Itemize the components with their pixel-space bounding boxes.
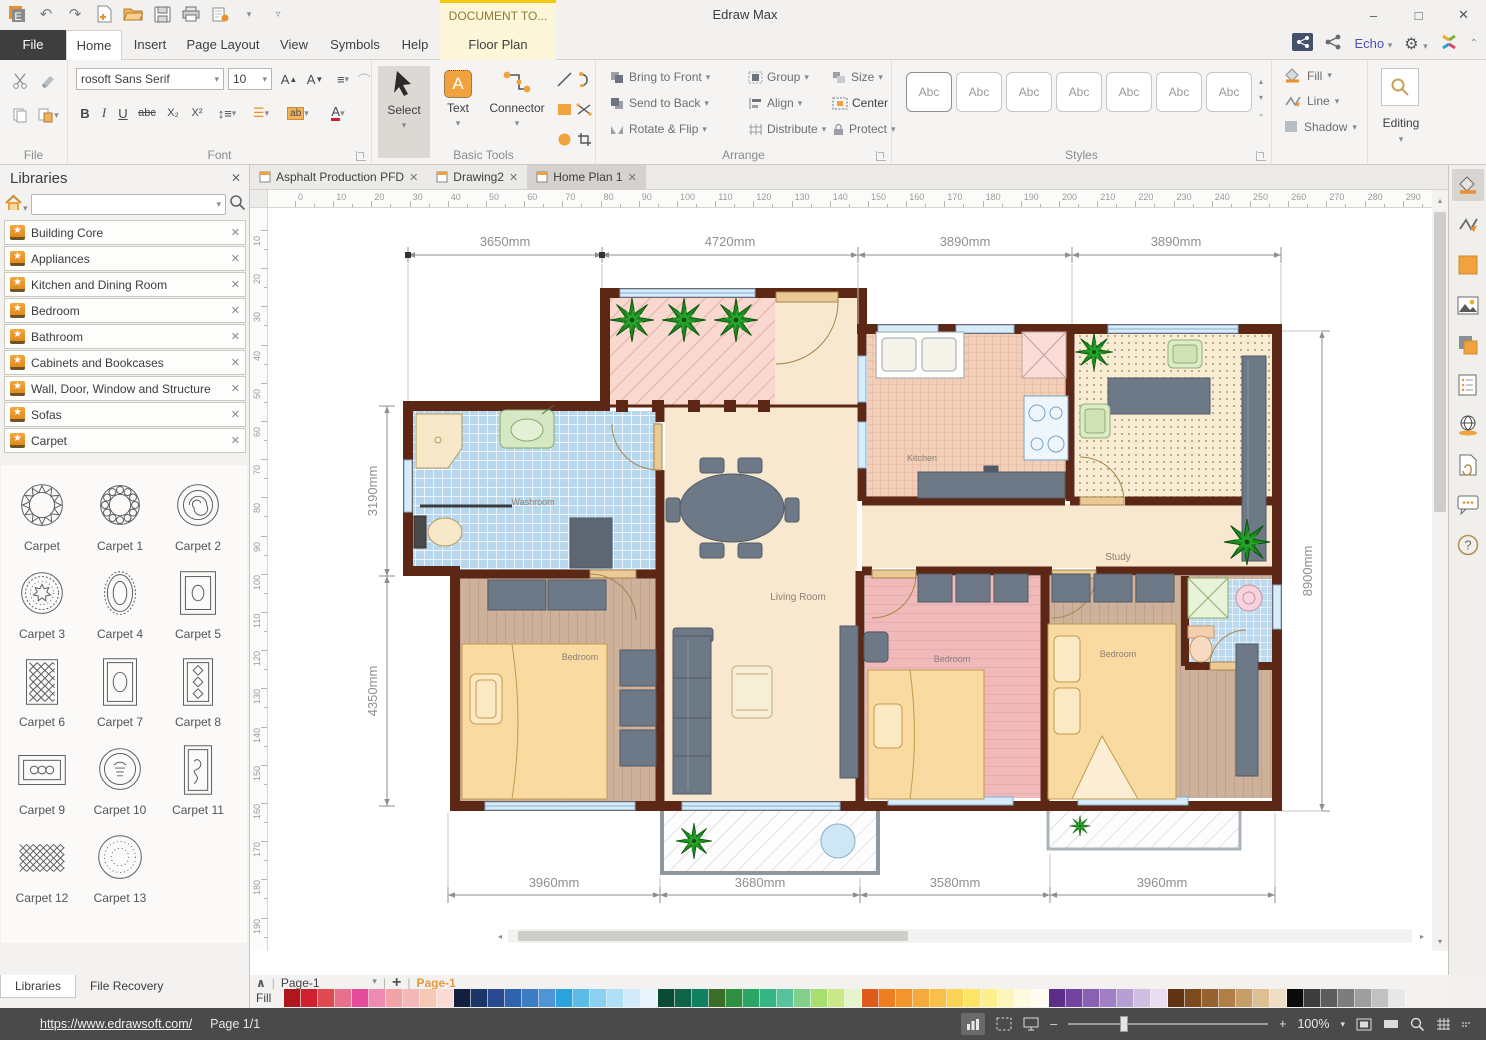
editing-find-icon[interactable]	[1381, 68, 1419, 106]
carpet-item[interactable]: Carpet	[3, 471, 81, 559]
fit-page-icon[interactable]	[1356, 1018, 1372, 1031]
color-swatch[interactable]	[1134, 989, 1151, 1007]
color-swatch[interactable]	[845, 989, 862, 1007]
select-tool-button[interactable]: Select▾	[378, 66, 430, 158]
share-icon[interactable]	[1325, 34, 1342, 53]
library-group[interactable]: ★Bedroom✕	[4, 298, 246, 323]
layers-icon[interactable]	[1452, 329, 1484, 361]
library-group-label: Cabinets and Bookcases	[31, 356, 225, 370]
ruler-number: 140	[833, 192, 848, 202]
crop-tool-icon[interactable]	[572, 128, 596, 150]
color-swatch[interactable]	[488, 989, 505, 1007]
shadow-icon	[1284, 120, 1299, 134]
color-swatch[interactable]	[437, 989, 454, 1007]
color-swatch[interactable]	[1151, 989, 1168, 1007]
color-swatch[interactable]	[658, 989, 675, 1007]
bullet-list-icon[interactable]: ☰ ▾	[246, 102, 276, 124]
color-swatch[interactable]	[1219, 989, 1236, 1007]
ruler-number: 0	[298, 192, 303, 202]
carpet-item[interactable]: Carpet 9	[3, 735, 81, 823]
library-star-icon: ★	[10, 433, 25, 448]
color-swatch[interactable]	[1338, 989, 1355, 1007]
color-swatch[interactable]	[896, 989, 913, 1007]
balconies[interactable]	[662, 807, 1240, 873]
attachment-icon[interactable]	[1452, 449, 1484, 481]
arrange-dialog-launcher-icon[interactable]	[876, 151, 886, 161]
svg-text:E: E	[14, 11, 21, 23]
carpet-item[interactable]: Carpet 2	[159, 471, 237, 559]
color-swatch[interactable]	[284, 989, 301, 1007]
carpet-item[interactable]: Carpet 10	[81, 735, 159, 823]
horizontal-scrollbar[interactable]: ◂ ▸	[508, 929, 1412, 943]
bold-button[interactable]: B	[76, 102, 94, 124]
library-search-input[interactable]: ▾	[31, 194, 226, 215]
color-swatch[interactable]	[930, 989, 947, 1007]
insert-image-icon[interactable]	[1452, 289, 1484, 321]
carpet-shape-icon	[89, 563, 151, 625]
library-group[interactable]: ★Sofas✕	[4, 402, 246, 427]
decrease-font-icon[interactable]: A▼	[302, 68, 328, 90]
save-button[interactable]	[151, 3, 173, 25]
undo-button[interactable]: ↶	[35, 3, 57, 25]
library-star-icon: ★	[10, 355, 25, 370]
send-to-back-button[interactable]: Send to Back▾	[610, 96, 709, 110]
page-select[interactable]: Page-1▾	[281, 976, 377, 990]
library-group-label: Bedroom	[31, 304, 225, 318]
comment-icon[interactable]	[1452, 489, 1484, 521]
carpet-shape-icon	[167, 563, 229, 625]
subscript-button[interactable]: X₂	[162, 102, 184, 124]
carpet-shape-icon	[89, 651, 151, 713]
tab-insert[interactable]: Insert	[122, 30, 178, 60]
color-swatch[interactable]	[1304, 989, 1321, 1007]
library-group[interactable]: ★Building Core✕	[4, 220, 246, 245]
color-palette	[284, 989, 1406, 1007]
carpet-label: Carpet 3	[19, 627, 65, 641]
doc-tab-drawing2[interactable]: Drawing2✕	[427, 165, 527, 189]
color-swatch[interactable]	[675, 989, 692, 1007]
style-preset[interactable]: Abc	[1206, 72, 1252, 112]
color-swatch[interactable]	[1372, 989, 1389, 1007]
zoom-slider-thumb[interactable]	[1120, 1016, 1128, 1032]
distribute-icon	[748, 123, 763, 136]
carpet-gallery: CarpetCarpet 1Carpet 2Carpet 3Carpet 4Ca…	[1, 465, 247, 943]
label-study: Study	[1105, 552, 1131, 563]
carpet-item[interactable]: Carpet 6	[3, 647, 81, 735]
style-preset[interactable]: Abc	[1106, 72, 1152, 112]
styles-dialog-launcher-icon[interactable]	[1256, 151, 1266, 161]
select-area-icon[interactable]	[996, 1017, 1012, 1031]
panel-tab-file-recovery[interactable]: File Recovery	[76, 975, 177, 997]
ruler-number: 130	[252, 689, 262, 704]
horizontal-ruler[interactable]: 0102030405060708090100110120130140150160…	[268, 190, 1432, 208]
carpet-shape-icon	[167, 739, 229, 801]
zoom-level[interactable]: 100%	[1297, 1017, 1329, 1031]
ruler-number: 160	[252, 804, 262, 819]
h-scroll-thumb[interactable]	[518, 931, 908, 941]
label-bedroom: Bedroom	[562, 652, 599, 662]
ruler-number: 50	[489, 192, 499, 202]
page-bar: ∧ | Page-1▾ | + | Page-1 Fill	[250, 975, 1448, 1008]
editing-label[interactable]: Editing	[1368, 116, 1434, 130]
redo-button[interactable]: ↷	[64, 3, 86, 25]
color-swatch[interactable]	[539, 989, 556, 1007]
font-color-icon[interactable]: A ▾	[320, 102, 356, 124]
color-swatch[interactable]	[556, 989, 573, 1007]
fit-width-icon[interactable]	[1383, 1019, 1399, 1030]
library-group[interactable]: ★Appliances✕	[4, 246, 246, 271]
color-swatch[interactable]	[828, 989, 845, 1007]
zoom-dropdown-icon[interactable]: ▾	[1340, 1019, 1345, 1030]
customize-qat-icon[interactable]: ▿	[267, 3, 289, 25]
bring-to-front-button[interactable]: Bring to Front▾	[610, 70, 710, 84]
carpet-label: Carpet 10	[94, 803, 147, 817]
quick-color-icon[interactable]	[1452, 249, 1484, 281]
ruler-number: 80	[604, 192, 614, 202]
close-library-icon[interactable]: ✕	[231, 434, 240, 447]
vertical-scrollbar[interactable]: ▴ ▾	[1432, 190, 1448, 951]
color-swatch[interactable]	[794, 989, 811, 1007]
title-bar: E ↶ ↷ ▾ ▿ Edraw Max – □ ✕	[0, 0, 1486, 30]
drawing-canvas[interactable]: Washroom Kitchen Study Living Room Bedro…	[268, 208, 1432, 951]
open-file-button[interactable]	[122, 3, 144, 25]
center-icon	[832, 97, 848, 110]
library-star-icon: ★	[10, 407, 25, 422]
color-swatch[interactable]	[692, 989, 709, 1007]
close-library-icon[interactable]: ✕	[231, 408, 240, 421]
color-swatch[interactable]	[607, 989, 624, 1007]
style-preset[interactable]: Abc	[1156, 72, 1202, 112]
minimize-button[interactable]: –	[1351, 0, 1396, 30]
collapse-ribbon-icon[interactable]: ⌃	[1470, 38, 1478, 49]
strikethrough-button[interactable]: abc	[134, 102, 160, 124]
style-preset[interactable]: Abc	[1006, 72, 1052, 112]
resize-grip[interactable]	[1462, 1022, 1472, 1027]
color-swatch[interactable]	[879, 989, 896, 1007]
carpet-item[interactable]: Carpet 13	[81, 823, 159, 911]
color-swatch[interactable]	[590, 989, 607, 1007]
label-washroom: Washroom	[511, 497, 554, 507]
color-swatch[interactable]	[403, 989, 420, 1007]
tab-file[interactable]: File	[0, 30, 66, 60]
protect-lock-icon	[832, 123, 845, 136]
text-highlight-icon[interactable]: ab ▾	[280, 102, 316, 124]
presentation-icon[interactable]	[1023, 1017, 1039, 1031]
connector-icon	[502, 70, 532, 98]
ruler-number: 60	[252, 427, 262, 437]
ribbon-group-editing: Editing ▾	[1368, 60, 1434, 164]
community-icon[interactable]	[1440, 33, 1458, 54]
help-icon[interactable]: ?	[1452, 529, 1484, 561]
color-swatch[interactable]	[1185, 989, 1202, 1007]
close-library-icon[interactable]: ✕	[231, 252, 240, 265]
color-swatch[interactable]	[913, 989, 930, 1007]
color-swatch[interactable]	[1032, 989, 1049, 1007]
library-group[interactable]: ★Carpet✕	[4, 428, 246, 453]
tab-symbols[interactable]: Symbols	[320, 30, 390, 60]
carpet-item[interactable]: Carpet 8	[159, 647, 237, 735]
doc-tab-home-plan[interactable]: Home Plan 1✕	[527, 165, 646, 189]
close-library-icon[interactable]: ✕	[231, 278, 240, 291]
color-swatch[interactable]	[573, 989, 590, 1007]
zoom-out-button[interactable]: –	[1050, 1017, 1057, 1031]
color-swatch[interactable]	[1253, 989, 1270, 1007]
carpet-item[interactable]: Carpet 12	[3, 823, 81, 911]
ruler-number: 200	[1062, 192, 1077, 202]
fill-tool-icon[interactable]	[1452, 169, 1484, 201]
ruler-number: 60	[527, 192, 537, 202]
line-tool-sidebar-icon[interactable]	[1452, 209, 1484, 241]
library-group-label: Wall, Door, Window and Structure	[31, 382, 225, 396]
color-swatch[interactable]	[471, 989, 488, 1007]
zoom-in-button[interactable]: +	[1279, 1017, 1286, 1031]
ruler-number: 290	[1406, 192, 1421, 202]
color-swatch[interactable]	[420, 989, 437, 1007]
align-button[interactable]: Align▾	[748, 96, 802, 110]
carpet-item[interactable]: Carpet 5	[159, 559, 237, 647]
style-preset[interactable]: Abc	[956, 72, 1002, 112]
hyperlink-icon[interactable]	[1452, 409, 1484, 441]
color-swatch[interactable]	[1287, 989, 1304, 1007]
color-swatch[interactable]	[352, 989, 369, 1007]
fill-palette-label: Fill	[256, 991, 271, 1005]
curve-tool-icon[interactable]	[572, 68, 596, 90]
color-swatch[interactable]	[335, 989, 352, 1007]
color-swatch[interactable]	[1015, 989, 1032, 1007]
color-swatch[interactable]	[505, 989, 522, 1007]
text-arc-icon[interactable]: ⌒	[356, 68, 372, 90]
library-group[interactable]: ★Cabinets and Bookcases✕	[4, 350, 246, 375]
style-preset[interactable]: Abc	[906, 72, 952, 112]
library-group[interactable]: ★Kitchen and Dining Room✕	[4, 272, 246, 297]
ruler-number: 140	[252, 728, 262, 743]
website-link[interactable]: https://www.edrawsoft.com/	[40, 1017, 192, 1031]
close-library-icon[interactable]: ✕	[231, 304, 240, 317]
ruler-number: 20	[374, 192, 384, 202]
page-tab[interactable]: Page-1	[416, 976, 455, 990]
shadow-button[interactable]: Shadow▾	[1284, 120, 1357, 134]
color-swatch[interactable]	[369, 989, 386, 1007]
color-swatch[interactable]	[1083, 989, 1100, 1007]
carpet-shape-icon	[89, 827, 151, 889]
style-preset[interactable]: Abc	[1056, 72, 1102, 112]
print-button[interactable]	[180, 3, 202, 25]
search-icon[interactable]	[229, 194, 246, 214]
color-swatch[interactable]	[454, 989, 471, 1007]
ruler-number: 110	[718, 192, 732, 202]
color-swatch[interactable]	[624, 989, 641, 1007]
styles-more-icon[interactable]: ⌄	[1254, 102, 1268, 124]
color-swatch[interactable]	[1100, 989, 1117, 1007]
select-cursor-icon	[391, 70, 417, 100]
tab-view[interactable]: View	[268, 30, 320, 60]
size-button[interactable]: Size▾	[832, 70, 883, 84]
library-group[interactable]: ★Wall, Door, Window and Structure✕	[4, 376, 246, 401]
panel-bottom-tabs: Libraries File Recovery	[0, 975, 250, 1008]
ruler-number: 90	[252, 542, 262, 552]
export-button[interactable]	[209, 3, 231, 25]
carpet-item[interactable]: Carpet 3	[3, 559, 81, 647]
doc-tab-asphalt[interactable]: Asphalt Production PFD✕	[250, 165, 427, 189]
library-groups: ★Building Core✕★Appliances✕★Kitchen and …	[0, 219, 250, 454]
increase-font-icon[interactable]: A▲	[276, 68, 302, 90]
color-swatch[interactable]	[1202, 989, 1219, 1007]
ruler-number: 190	[252, 919, 262, 934]
group-icon	[748, 71, 763, 84]
carpet-shape-icon	[89, 739, 151, 801]
font-size-select[interactable]: 10▾	[228, 68, 272, 90]
font-family-select[interactable]: rosoft Sans Serif▾	[76, 68, 224, 90]
group-button[interactable]: Group▾	[748, 70, 809, 84]
color-swatch[interactable]	[862, 989, 879, 1007]
color-swatch[interactable]	[1066, 989, 1083, 1007]
underline-button[interactable]: U	[114, 102, 132, 124]
tab-page-layout[interactable]: Page Layout	[178, 30, 268, 60]
line-button[interactable]: Line▾	[1284, 94, 1339, 108]
label-bedroom: Bedroom	[934, 654, 971, 664]
v-scroll-thumb[interactable]	[1434, 212, 1446, 512]
color-swatch[interactable]	[998, 989, 1015, 1007]
ruler-number: 100	[680, 192, 695, 202]
carpet-item[interactable]: Carpet 11	[159, 735, 237, 823]
maximize-button[interactable]: □	[1396, 0, 1441, 30]
color-swatch[interactable]	[522, 989, 539, 1007]
ruler-number: 180	[252, 880, 262, 895]
close-button[interactable]: ✕	[1441, 0, 1486, 30]
home-library-icon[interactable]: ▾	[4, 194, 28, 214]
ruler-number: 110	[252, 614, 262, 628]
center-button[interactable]: Center	[832, 96, 888, 110]
carpet-item[interactable]: Carpet 7	[81, 647, 159, 735]
rotate-flip-button[interactable]: Rotate & Flip▾	[610, 122, 707, 136]
color-swatch[interactable]	[318, 989, 335, 1007]
zoom-slider[interactable]	[1068, 1023, 1268, 1025]
color-swatch[interactable]	[1389, 989, 1406, 1007]
svg-text:3890mm: 3890mm	[1151, 234, 1202, 249]
color-swatch[interactable]	[777, 989, 794, 1007]
protect-button[interactable]: Protect▾	[832, 122, 896, 136]
zoom-region-icon[interactable]	[1410, 1017, 1425, 1031]
close-library-icon[interactable]: ✕	[231, 382, 240, 395]
paste-icon[interactable]: ▾	[36, 104, 60, 126]
library-group-label: Building Core	[31, 226, 225, 240]
carpet-label: Carpet 4	[97, 627, 143, 641]
color-swatch[interactable]	[726, 989, 743, 1007]
tab-help[interactable]: Help	[390, 30, 440, 60]
settings-gear-icon[interactable]: ⚙ ▾	[1404, 34, 1427, 54]
carpet-item[interactable]: Carpet 1	[81, 471, 159, 559]
collapse-pages-icon[interactable]: ∧	[256, 976, 266, 990]
new-document-button[interactable]	[93, 3, 115, 25]
qat-export-dropdown-icon[interactable]: ▾	[238, 3, 260, 25]
ruler-number: 40	[451, 192, 461, 202]
grid-toggle-icon[interactable]	[1436, 1017, 1451, 1031]
align-text-icon[interactable]: ≡ ▾	[330, 68, 356, 90]
ruler-number: 270	[1329, 192, 1344, 202]
import-icon[interactable]	[1292, 33, 1313, 54]
color-swatch[interactable]	[947, 989, 964, 1007]
color-swatch[interactable]	[709, 989, 726, 1007]
edraw-max-window: E ↶ ↷ ▾ ▿ Edraw Max – □ ✕ DOCUMENT TO...…	[0, 0, 1486, 1040]
copy-icon[interactable]	[8, 104, 32, 126]
send-to-back-icon	[610, 97, 625, 110]
size-icon	[832, 71, 847, 84]
ruler-number: 40	[252, 351, 262, 361]
vertical-ruler[interactable]: 1020304050607080901001101201301401501601…	[250, 208, 268, 951]
library-star-icon: ★	[10, 329, 25, 344]
color-swatch[interactable]	[1355, 989, 1372, 1007]
color-swatch[interactable]	[1270, 989, 1287, 1007]
color-swatch[interactable]	[964, 989, 981, 1007]
color-swatch[interactable]	[1236, 989, 1253, 1007]
fill-button[interactable]: Fill▾	[1284, 68, 1332, 83]
color-swatch[interactable]	[743, 989, 760, 1007]
close-panel-icon[interactable]: ✕	[231, 171, 241, 185]
close-library-icon[interactable]: ✕	[231, 330, 240, 343]
color-swatch[interactable]	[760, 989, 777, 1007]
ruler-number: 80	[252, 503, 262, 513]
carpet-label: Carpet 13	[94, 891, 147, 905]
ruler-number: 250	[1253, 192, 1268, 202]
library-star-icon: ★	[10, 381, 25, 396]
color-swatch[interactable]	[386, 989, 403, 1007]
superscript-button[interactable]: X²	[186, 102, 208, 124]
notes-icon[interactable]	[1452, 369, 1484, 401]
cut-icon[interactable]	[8, 70, 32, 92]
color-swatch[interactable]	[1168, 989, 1185, 1007]
account-menu[interactable]: Echo ▾	[1354, 36, 1392, 51]
italic-button[interactable]: I	[96, 102, 112, 124]
color-swatch[interactable]	[981, 989, 998, 1007]
line-spacing-icon[interactable]: ↕≡ ▾	[212, 102, 242, 124]
theme-panel-icon[interactable]	[961, 1013, 985, 1035]
color-swatch[interactable]	[301, 989, 318, 1007]
status-bar: https://www.edrawsoft.com/ Page 1/1 – + …	[0, 1008, 1486, 1040]
tab-floor-plan[interactable]: Floor Plan	[440, 30, 556, 60]
color-swatch[interactable]	[641, 989, 658, 1007]
quick-access-toolbar: E ↶ ↷ ▾ ▿	[6, 3, 289, 25]
distribute-button[interactable]: Distribute▾	[748, 122, 826, 136]
document-icon	[259, 171, 271, 183]
ruler-number: 30	[413, 192, 423, 202]
connector-tool-button[interactable]: Connector▾	[486, 66, 548, 158]
freeform-tool-icon[interactable]	[572, 98, 596, 120]
floor-plan-drawing[interactable]: Washroom Kitchen Study Living Room Bedro…	[280, 208, 1432, 951]
font-dialog-launcher-icon[interactable]	[356, 151, 366, 161]
ruler-number: 190	[1024, 192, 1039, 202]
panel-tab-libraries[interactable]: Libraries	[0, 975, 76, 998]
format-painter-icon[interactable]	[36, 70, 60, 92]
ruler-number: 30	[252, 312, 262, 322]
color-swatch[interactable]	[1049, 989, 1066, 1007]
tab-home[interactable]: Home	[66, 30, 122, 60]
ruler-number: 50	[252, 389, 262, 399]
ruler-number: 260	[1291, 192, 1306, 202]
library-group[interactable]: ★Bathroom✕	[4, 324, 246, 349]
color-swatch[interactable]	[1117, 989, 1134, 1007]
ribbon-group-font: rosoft Sans Serif▾ 10▾ A▲ A▼ ≡ ▾ ⌒ B I U…	[68, 60, 372, 164]
ribbon-group-styles: Abc Abc Abc Abc Abc Abc Abc ▴ ▾ ⌄ Styles	[892, 60, 1272, 164]
page-indicator: Page 1/1	[210, 1017, 260, 1031]
ruler-number: 150	[252, 766, 262, 781]
carpet-item[interactable]: Carpet 4	[81, 559, 159, 647]
color-swatch[interactable]	[1321, 989, 1338, 1007]
close-library-icon[interactable]: ✕	[231, 226, 240, 239]
color-swatch[interactable]	[811, 989, 828, 1007]
label-kitchen: Kitchen	[907, 453, 937, 463]
close-library-icon[interactable]: ✕	[231, 356, 240, 369]
text-tool-button[interactable]: A Text▾	[432, 66, 484, 158]
